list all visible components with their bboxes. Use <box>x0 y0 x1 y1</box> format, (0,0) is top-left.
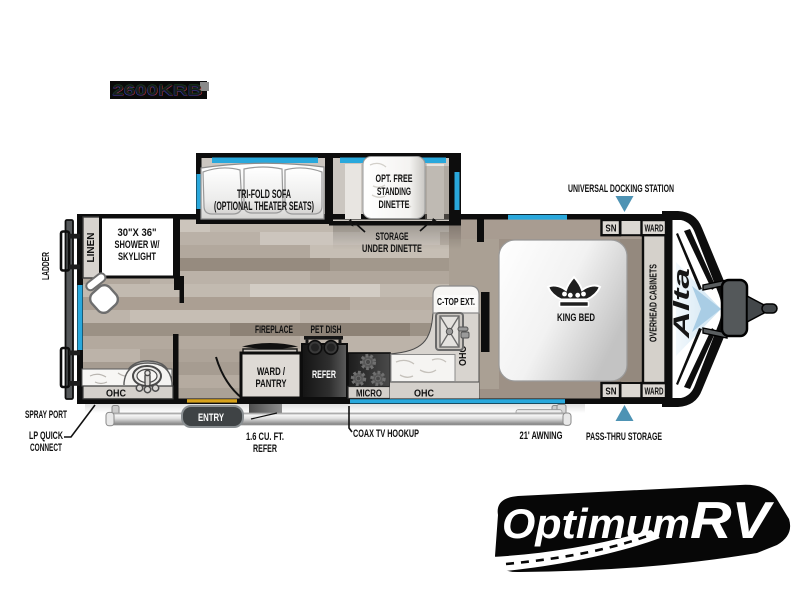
svg-text:PANTRY: PANTRY <box>256 378 287 390</box>
svg-text:PASS-THRU STORAGE: PASS-THRU STORAGE <box>586 431 662 443</box>
svg-text:21' AWNING: 21' AWNING <box>520 430 563 442</box>
svg-text:OHC: OHC <box>414 388 434 400</box>
svg-text:LP QUICK: LP QUICK <box>29 430 63 442</box>
svg-text:UNDER DINETTE: UNDER DINETTE <box>362 243 422 255</box>
svg-text:2600KRB: 2600KRB <box>113 82 203 99</box>
svg-text:ENTRY: ENTRY <box>198 412 224 424</box>
svg-text:REFER: REFER <box>253 443 277 455</box>
svg-text:OVERHEAD CABINETS: OVERHEAD CABINETS <box>649 264 660 342</box>
svg-text:1.6 CU. FT.: 1.6 CU. FT. <box>246 431 284 443</box>
svg-text:Alta: Alta <box>669 268 694 340</box>
svg-text:LINEN: LINEN <box>86 233 97 263</box>
svg-text:C-TOP EXT.: C-TOP EXT. <box>437 296 475 308</box>
svg-text:Optimum: Optimum <box>502 500 690 547</box>
svg-text:WARD: WARD <box>645 387 664 398</box>
svg-text:STORAGE: STORAGE <box>376 231 409 243</box>
svg-text:UNIVERSAL DOCKING STATION: UNIVERSAL DOCKING STATION <box>568 183 674 195</box>
svg-text:LADDER: LADDER <box>40 252 52 280</box>
svg-text:RV: RV <box>690 492 775 550</box>
svg-text:SPRAY PORT: SPRAY PORT <box>25 409 67 421</box>
svg-text:FIREPLACE: FIREPLACE <box>255 324 293 336</box>
svg-text:PET DISH: PET DISH <box>311 324 342 336</box>
svg-text:NS: NS <box>605 221 616 232</box>
svg-text:TRI-FOLD SOFA: TRI-FOLD SOFA <box>237 189 291 201</box>
svg-text:KING BED: KING BED <box>557 312 595 324</box>
svg-text:OHC: OHC <box>106 388 126 400</box>
svg-text:WARD /: WARD / <box>257 366 285 378</box>
svg-text:STANDING: STANDING <box>377 186 411 198</box>
svg-text:WARD: WARD <box>645 224 664 235</box>
svg-text:(OPTIONAL THEATER SEATS): (OPTIONAL THEATER SEATS) <box>214 201 314 213</box>
svg-text:NS: NS <box>605 385 616 396</box>
svg-text:SKYLIGHT: SKYLIGHT <box>118 251 156 263</box>
svg-text:SHOWER W/: SHOWER W/ <box>115 239 160 251</box>
svg-text:DINETTE: DINETTE <box>379 199 410 211</box>
svg-text:REFER: REFER <box>312 369 336 381</box>
svg-text:COAX TV HOOKUP: COAX TV HOOKUP <box>353 428 419 440</box>
svg-text:30"X 36": 30"X 36" <box>118 227 157 239</box>
svg-text:CONNECT: CONNECT <box>30 442 62 454</box>
svg-text:OPT. FREE: OPT. FREE <box>376 173 413 185</box>
svg-text:MICRO: MICRO <box>356 388 382 400</box>
